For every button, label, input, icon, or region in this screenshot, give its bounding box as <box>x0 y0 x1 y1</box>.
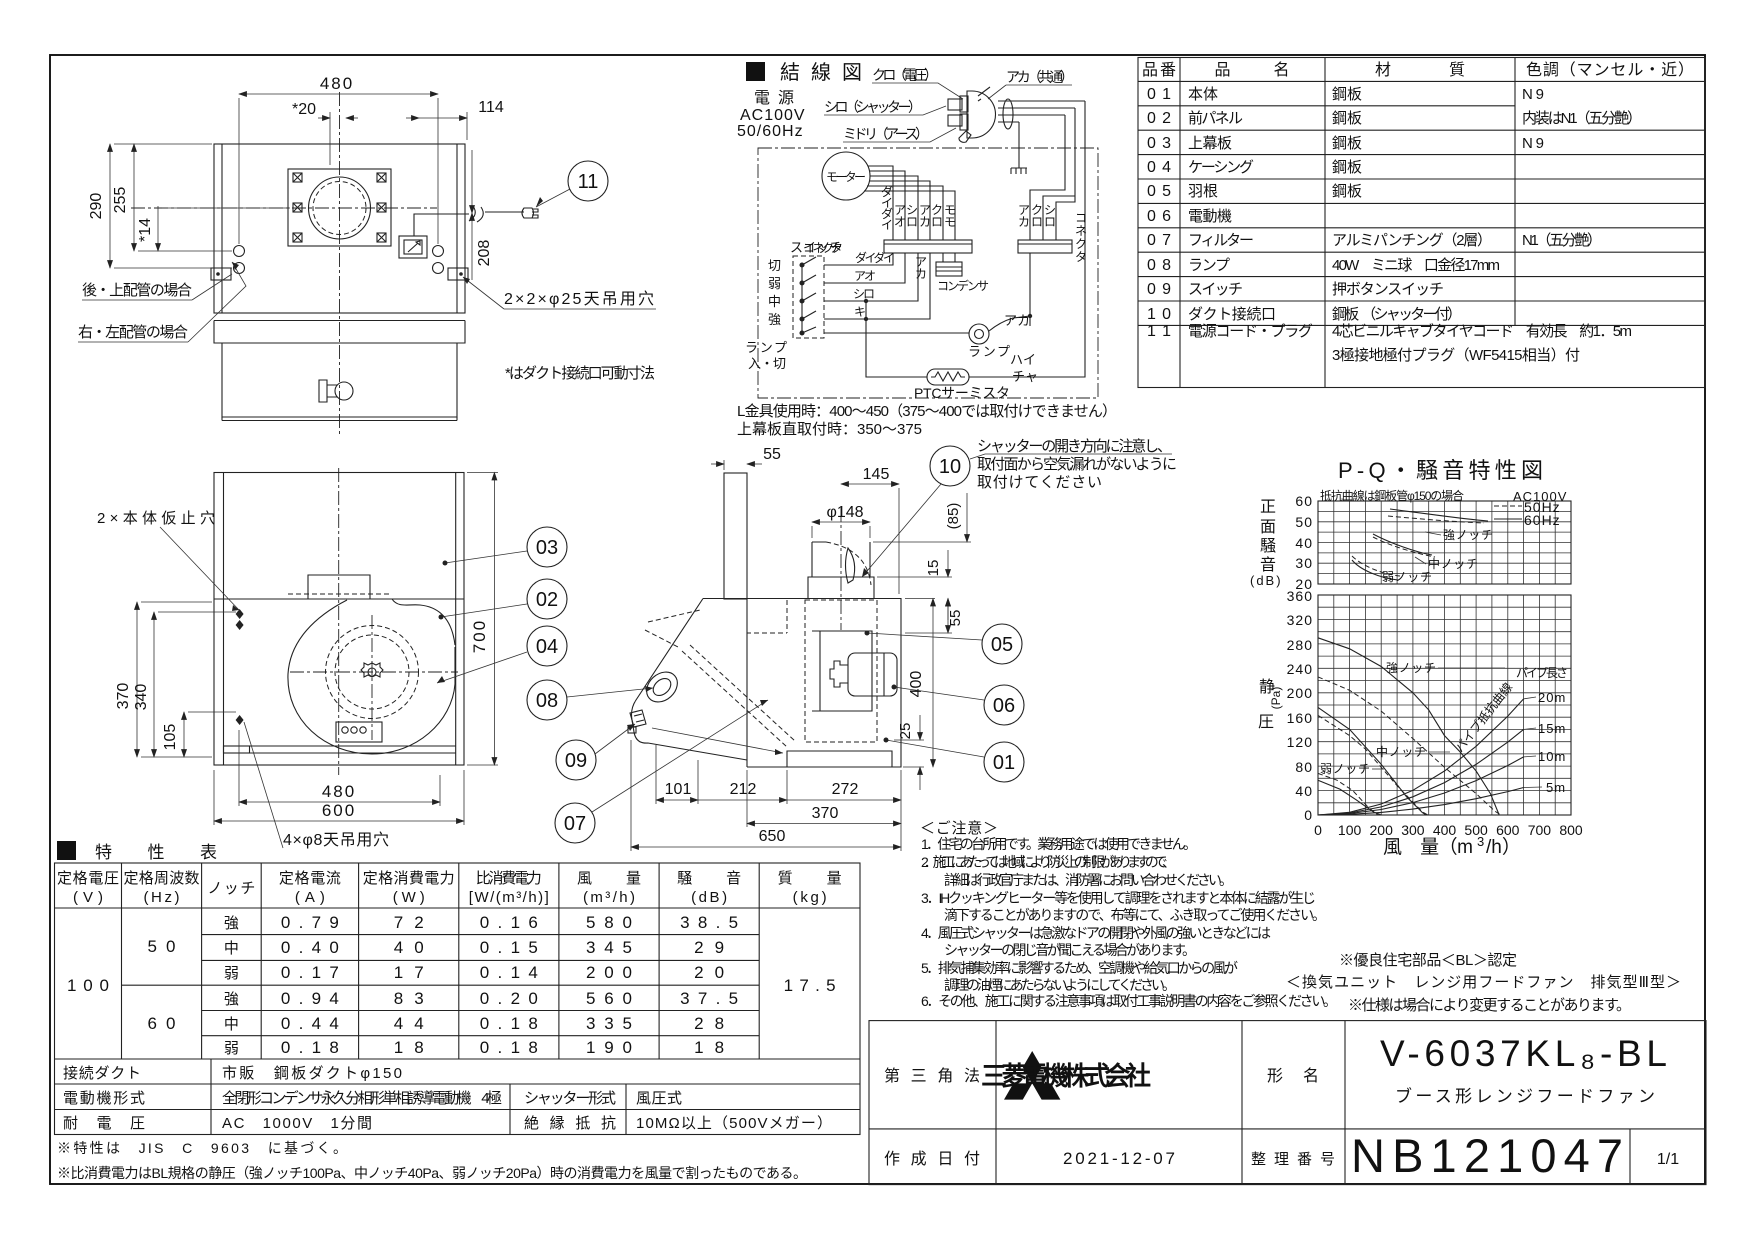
svg-text:01: 01 <box>993 752 1015 774</box>
svg-text:アカ: アカ <box>1004 313 1030 328</box>
svg-text:480: 480 <box>322 782 356 801</box>
svg-text:チャ: チャ <box>1012 369 1038 384</box>
svg-text:(Pa): (Pa) <box>1269 687 1283 710</box>
svg-text:0: 0 <box>1314 822 1322 838</box>
svg-text:4．風圧式シャッターは急激なドアの開閉や外風の強いときなどに: 4．風圧式シャッターは急激なドアの開閉や外風の強いときなどには <box>921 925 1271 941</box>
svg-text:5．排気捕集効率に影響するため、空調機や給気口からの風が: 5．排気捕集効率に影響するため、空調機や給気口からの風が <box>921 960 1238 976</box>
svg-text:※優良住宅部品＜BL＞認定: ※優良住宅部品＜BL＞認定 <box>1339 952 1517 969</box>
svg-text:シロ（シャッター）: シロ（シャッター） <box>824 99 922 115</box>
svg-text:絶 縁 抵 抗: 絶 縁 抵 抗 <box>524 1115 616 1132</box>
svg-text:中: 中 <box>224 940 239 957</box>
svg-text:105: 105 <box>162 724 179 751</box>
svg-text:15m: 15m <box>1538 721 1566 736</box>
svg-text:後・上配管の場合: 後・上配管の場合 <box>82 282 192 299</box>
svg-text:08: 08 <box>536 690 558 712</box>
svg-text:接続ダクト: 接続ダクト <box>63 1065 141 1082</box>
svg-text:シロ: シロ <box>853 287 875 301</box>
svg-text:スイッチ: スイッチ <box>790 240 842 255</box>
svg-text:2．施工にあたっては地域により防災上の制限がありますので、: 2．施工にあたっては地域により防災上の制限がありますので、 <box>921 854 1176 870</box>
svg-text:弱ノッチ: 弱ノッチ <box>1382 570 1432 584</box>
svg-text:208: 208 <box>476 240 493 267</box>
svg-text:*14: *14 <box>137 218 154 242</box>
svg-text:取付けてください: 取付けてください <box>977 474 1102 491</box>
svg-text:ランプ: ランプ <box>745 340 787 355</box>
svg-text:※特性は JIS C 9603 に基づく。: ※特性は JIS C 9603 に基づく。 <box>57 1140 347 1156</box>
svg-text:10MΩ以上（500Vメガー）: 10MΩ以上（500Vメガー） <box>636 1115 832 1132</box>
svg-text:280: 280 <box>1287 637 1313 653</box>
svg-text:10m: 10m <box>1538 749 1566 764</box>
svg-text:アカ: アカ <box>1018 203 1030 229</box>
svg-text:クロ（電圧）: クロ（電圧） <box>872 67 938 83</box>
svg-text:ダイダイ: ダイダイ <box>881 184 893 232</box>
svg-text:鋼板: 鋼板 <box>1332 85 1362 103</box>
svg-text:面: 面 <box>1260 519 1276 536</box>
svg-text:800: 800 <box>1559 822 1583 838</box>
svg-text:弱ノッチ: 弱ノッチ <box>1320 762 1370 776</box>
svg-text:ミドリ（アース）: ミドリ（アース） <box>843 126 929 142</box>
svg-text:質 量: 質 量 <box>778 869 842 887</box>
svg-text:正: 正 <box>1260 499 1276 516</box>
svg-text:パイプ長さ: パイプ長さ <box>1516 666 1568 680</box>
svg-text:114: 114 <box>478 99 504 116</box>
svg-text:(85): (85) <box>945 503 962 530</box>
svg-text:※仕様は場合により変更することがあります。: ※仕様は場合により変更することがあります。 <box>1348 997 1631 1014</box>
svg-text:145: 145 <box>863 466 890 483</box>
svg-text:200: 200 <box>1370 822 1394 838</box>
svg-text:強: 強 <box>224 991 239 1008</box>
svg-text:200: 200 <box>1287 685 1313 701</box>
svg-text:480: 480 <box>320 74 354 93</box>
svg-text:ケーシング: ケーシング <box>1188 159 1254 176</box>
svg-text:作 成 日 付: 作 成 日 付 <box>884 1150 980 1168</box>
svg-text:360: 360 <box>1287 588 1313 604</box>
svg-text:ハイ: ハイ <box>1010 352 1036 367</box>
svg-text:コネクタ: コネクタ <box>1075 211 1087 264</box>
svg-text:190: 190 <box>586 1038 632 1057</box>
svg-text:(A): (A) <box>295 889 325 906</box>
svg-text:品 名: 品 名 <box>1215 61 1290 79</box>
svg-text:400: 400 <box>908 671 925 698</box>
svg-text:320: 320 <box>1287 612 1313 628</box>
svg-text:弱: 弱 <box>224 965 239 982</box>
svg-text:(dB): (dB) <box>1250 573 1283 588</box>
svg-text:11: 11 <box>578 171 599 193</box>
svg-text:700: 700 <box>1528 822 1552 838</box>
svg-text:10: 10 <box>939 456 961 478</box>
svg-text:クロ: クロ <box>1031 203 1043 229</box>
svg-text:圧: 圧 <box>1258 714 1274 731</box>
svg-text:全閉形コンデンサ永久分相形単相誘導電動機 4極: 全閉形コンデンサ永久分相形単相誘導電動機 4極 <box>222 1089 502 1107</box>
svg-text:4芯ビニルキャブタイヤコード 有効長 約1．5m: 4芯ビニルキャブタイヤコード 有効長 約1．5m <box>1332 322 1632 340</box>
svg-text:鋼板: 鋼板 <box>1332 134 1362 152</box>
svg-text:0: 0 <box>1304 807 1313 823</box>
svg-text:鋼板: 鋼板 <box>1332 182 1362 200</box>
svg-text:560: 560 <box>586 989 632 1008</box>
svg-text:前パネル: 前パネル <box>1188 110 1243 127</box>
svg-text:風 量（m: 風 量（m <box>1383 836 1473 858</box>
svg-text:結 線 図: 結 線 図 <box>780 61 862 84</box>
svg-text:強ノッチ: 強ノッチ <box>1443 528 1493 542</box>
svg-text:ダイダイ: ダイダイ <box>855 250 895 265</box>
svg-text:アルミパンチング（2層）: アルミパンチング（2層） <box>1332 232 1492 249</box>
svg-text:50: 50 <box>1295 514 1313 530</box>
svg-text:形 名: 形 名 <box>1267 1067 1319 1085</box>
svg-text:580: 580 <box>586 913 632 932</box>
svg-text:材 質: 材 質 <box>1375 61 1465 79</box>
svg-text:アカ: アカ <box>915 255 927 281</box>
svg-text:240: 240 <box>1287 661 1313 677</box>
svg-text:シロ: シロ <box>1044 203 1056 229</box>
svg-text:コンデンサ: コンデンサ <box>937 278 989 293</box>
svg-text:色調（マンセル・近）: 色調（マンセル・近） <box>1526 61 1694 79</box>
svg-text:詳細は行政官庁または、消防署にお問い合わせください。: 詳細は行政官庁または、消防署にお問い合わせください。 <box>944 872 1233 888</box>
svg-text:40: 40 <box>1295 535 1313 551</box>
svg-text:取付面から空気漏れがないように: 取付面から空気漏れがないように <box>977 456 1177 473</box>
svg-text:5m: 5m <box>1546 780 1566 795</box>
svg-text:PTCサーミスタ: PTCサーミスタ <box>914 385 1010 401</box>
svg-text:25: 25 <box>897 723 914 740</box>
svg-text:272: 272 <box>832 781 859 798</box>
svg-text:フィルター: フィルター <box>1188 232 1254 249</box>
svg-text:650: 650 <box>759 828 786 845</box>
svg-text:アオ: アオ <box>894 203 906 229</box>
svg-text:耐 電 圧: 耐 電 圧 <box>63 1115 145 1132</box>
svg-text:弱: 弱 <box>224 1040 239 1057</box>
svg-text:07: 07 <box>564 813 586 835</box>
svg-text:4×φ8天吊用穴: 4×φ8天吊用穴 <box>283 831 389 849</box>
svg-text:255: 255 <box>112 187 129 214</box>
svg-text:モモ: モモ <box>944 203 956 229</box>
svg-text:切: 切 <box>768 258 781 273</box>
svg-text:NB121047: NB121047 <box>1351 1129 1623 1182</box>
svg-text:定格周波数: 定格周波数 <box>124 870 200 887</box>
svg-text:40W ミニ球 口金径17mm: 40W ミニ球 口金径17mm <box>1332 257 1500 274</box>
svg-text:(W): (W) <box>393 889 425 906</box>
svg-text:本体: 本体 <box>1188 86 1218 103</box>
svg-text:鋼板: 鋼板 <box>1332 158 1362 176</box>
svg-text:アオ: アオ <box>854 269 876 283</box>
svg-text:400: 400 <box>1433 822 1457 838</box>
svg-text:スイッチ: スイッチ <box>1188 281 1243 298</box>
svg-text:30: 30 <box>1295 555 1313 571</box>
svg-text:電動機: 電動機 <box>1188 208 1232 225</box>
svg-text:100: 100 <box>1338 822 1362 838</box>
svg-text:20m: 20m <box>1538 690 1566 705</box>
svg-text:05: 05 <box>991 634 1013 656</box>
svg-text:騒: 騒 <box>1260 537 1276 555</box>
svg-text:50/60Hz: 50/60Hz <box>737 123 804 140</box>
svg-text:上幕板直取付時：350～375: 上幕板直取付時：350～375 <box>737 420 922 438</box>
svg-text:中: 中 <box>224 1016 239 1033</box>
svg-text:※比消費電力はBL規格の静圧（強ノッチ100Pa、中ノッチ4: ※比消費電力はBL規格の静圧（強ノッチ100Pa、中ノッチ40Pa、弱ノッチ20… <box>57 1165 807 1181</box>
svg-text:中ノッチ: 中ノッチ <box>1428 556 1478 571</box>
svg-text:V-6037KL₈-BL: V-6037KL₈-BL <box>1380 1033 1670 1074</box>
svg-text:700: 700 <box>470 619 489 653</box>
svg-text:212: 212 <box>730 781 757 798</box>
svg-text:101: 101 <box>665 781 692 798</box>
svg-text:L金具使用時：400～450（375～400では取付けできま: L金具使用時：400～450（375～400では取付けできません） <box>737 403 1117 420</box>
svg-text:風圧式: 風圧式 <box>636 1090 682 1107</box>
svg-text:100: 100 <box>67 976 109 995</box>
svg-text:市販 鋼板ダクトφ150: 市販 鋼板ダクトφ150 <box>222 1064 402 1082</box>
svg-text:騒 音: 騒 音 <box>677 870 741 887</box>
svg-text:600: 600 <box>322 801 356 820</box>
svg-text:09: 09 <box>565 750 587 772</box>
svg-text:AC100V: AC100V <box>740 107 806 124</box>
svg-text:強: 強 <box>224 915 239 932</box>
svg-text:60: 60 <box>1295 493 1313 509</box>
svg-text:キ: キ <box>854 305 866 319</box>
svg-text:強ノッチ: 強ノッチ <box>1386 661 1436 675</box>
svg-text:*20: *20 <box>292 101 316 118</box>
svg-text:06: 06 <box>993 695 1015 717</box>
svg-text:02: 02 <box>536 589 558 611</box>
svg-text:電 源: 電 源 <box>754 89 794 107</box>
svg-text:アカ（共通）: アカ（共通） <box>1006 69 1074 85</box>
svg-text:3: 3 <box>1477 834 1484 849</box>
svg-text:滴下することがありますので、布等にて、ふき取ってご使用くださ: 滴下することがありますので、布等にて、ふき取ってご使用ください。 <box>944 907 1326 923</box>
svg-text:290: 290 <box>88 193 105 220</box>
svg-text:調理の油煙にあたらないようにしてください。: 調理の油煙にあたらないようにしてください。 <box>944 977 1176 993</box>
svg-text:3極接地極付プラグ（WF5415相当）付: 3極接地極付プラグ（WF5415相当）付 <box>1332 347 1580 364</box>
svg-text:40: 40 <box>1295 783 1313 799</box>
svg-text:/h）: /h） <box>1486 836 1521 858</box>
svg-text:定格電流: 定格電流 <box>279 870 341 887</box>
svg-text:600: 600 <box>1496 822 1520 838</box>
svg-text:鋼板: 鋼板 <box>1332 109 1362 127</box>
svg-text:＜換気ユニット レンジ用フードファン 排気型Ⅲ型＞: ＜換気ユニット レンジ用フードファン 排気型Ⅲ型＞ <box>1286 974 1681 991</box>
svg-text:＜ご注意＞: ＜ご注意＞ <box>920 819 998 837</box>
svg-text:80: 80 <box>1295 759 1313 775</box>
svg-text:シロ: シロ <box>906 203 918 229</box>
svg-text:160: 160 <box>1287 710 1313 726</box>
svg-text:右・左配管の場合: 右・左配管の場合 <box>78 324 188 341</box>
svg-text:2×2×φ25天吊用穴: 2×2×φ25天吊用穴 <box>504 290 654 308</box>
svg-text:60Hz: 60Hz <box>1524 512 1561 528</box>
svg-text:1/1: 1/1 <box>1657 1151 1679 1168</box>
svg-text:ランプ: ランプ <box>968 344 1010 359</box>
svg-text:定格消費電力: 定格消費電力 <box>363 870 455 887</box>
svg-text:340: 340 <box>133 684 150 711</box>
svg-text:シャッターの開き方向に注意し、: シャッターの開き方向に注意し、 <box>977 437 1172 455</box>
svg-text:200: 200 <box>586 963 632 982</box>
svg-text:風 量: 風 量 <box>577 870 641 887</box>
svg-text:3．IHクッキングヒーター等を使用して調理をされますと本体に: 3．IHクッキングヒーター等を使用して調理をされますと本体に結露が生じ <box>921 890 1316 906</box>
svg-text:第 三 角 法: 第 三 角 法 <box>884 1067 980 1085</box>
svg-text:強: 強 <box>768 312 781 327</box>
svg-text:1．住宅の台所用です。業務用途では使用できません。: 1．住宅の台所用です。業務用途では使用できません。 <box>921 836 1197 852</box>
svg-text:345: 345 <box>586 938 632 957</box>
svg-text:ダクト接続口: ダクト接続口 <box>1188 306 1276 323</box>
svg-text:三菱電機株式会社: 三菱電機株式会社 <box>981 1061 1151 1091</box>
svg-text:比消費電力: 比消費電力 <box>476 870 542 887</box>
svg-text:ランプ: ランプ <box>1188 257 1230 274</box>
svg-text:03: 03 <box>536 537 558 559</box>
svg-text:ノッチ: ノッチ <box>207 880 255 897</box>
svg-text:120: 120 <box>1287 734 1313 750</box>
svg-text:15: 15 <box>925 560 942 577</box>
svg-text:370: 370 <box>812 805 839 822</box>
svg-text:335: 335 <box>586 1014 632 1033</box>
svg-text:上幕板: 上幕板 <box>1188 134 1232 152</box>
svg-text:弱: 弱 <box>768 276 781 291</box>
svg-text:アカ: アカ <box>919 203 931 229</box>
svg-text:シャッター形式: シャッター形式 <box>524 1090 616 1107</box>
svg-text:6．その他、施工に関する注意事項は取付工事説明書の内容をご参: 6．その他、施工に関する注意事項は取付工事説明書の内容をご参照ください。 <box>921 993 1337 1009</box>
svg-text:モーター: モーター <box>826 170 866 184</box>
svg-text:羽根: 羽根 <box>1188 183 1218 200</box>
svg-text:55: 55 <box>763 446 781 463</box>
svg-text:中ノッチ: 中ノッチ <box>1376 744 1426 759</box>
svg-text:φ148: φ148 <box>826 504 863 521</box>
svg-text:整 理 番 号: 整 理 番 号 <box>1251 1151 1335 1168</box>
svg-text:内装はN1（五分艶）: 内装はN1（五分艶） <box>1522 110 1642 127</box>
svg-text:鋼板 （シャッター付）: 鋼板 （シャッター付） <box>1332 305 1462 323</box>
svg-text:シャッターの閉じ音が聞こえる場合があります。: シャッターの閉じ音が聞こえる場合があります。 <box>944 942 1196 958</box>
svg-text:中: 中 <box>768 294 781 309</box>
svg-text:入・切: 入・切 <box>748 356 786 371</box>
svg-text:(V): (V) <box>73 889 103 906</box>
svg-text:音: 音 <box>1260 556 1276 574</box>
svg-text:300: 300 <box>1401 822 1425 838</box>
svg-text:品番: 品番 <box>1142 61 1176 79</box>
svg-text:*はダクト接続口可動寸法: *はダクト接続口可動寸法 <box>505 365 655 382</box>
svg-text:04: 04 <box>536 636 558 658</box>
svg-text:電源コード・プラグ: 電源コード・プラグ <box>1188 323 1313 340</box>
svg-text:N1（五分艶）: N1（五分艶） <box>1522 232 1602 249</box>
svg-text:クロ: クロ <box>931 203 943 229</box>
svg-text:55: 55 <box>947 610 964 627</box>
svg-text:電動機形式: 電動機形式 <box>63 1090 145 1107</box>
svg-text:(m³/h): (m³/h) <box>583 889 635 906</box>
svg-text:定格電圧: 定格電圧 <box>57 870 119 887</box>
svg-text:370: 370 <box>115 683 132 710</box>
svg-text:押ボタンスイッチ: 押ボタンスイッチ <box>1332 281 1444 298</box>
